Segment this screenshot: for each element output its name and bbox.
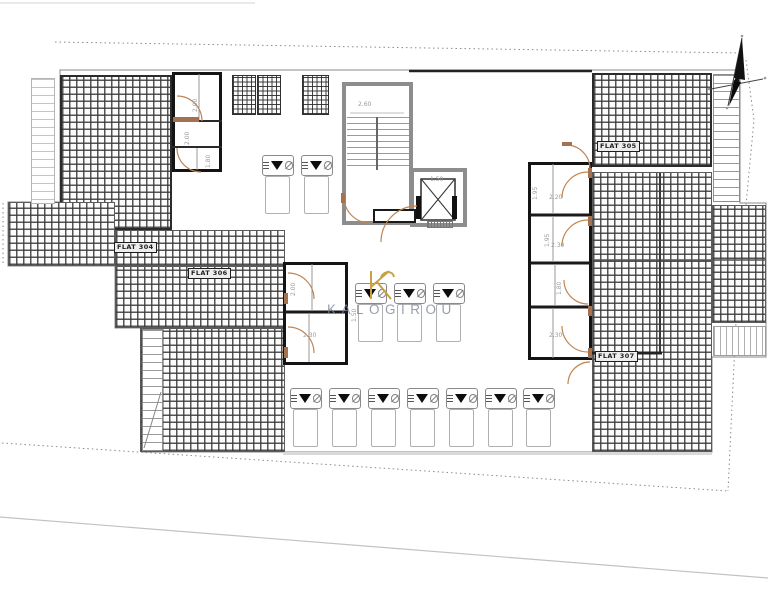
heater-panel-icon	[433, 283, 465, 304]
terrace-hatch-top-right	[592, 73, 712, 167]
heater-panel-icon	[485, 388, 517, 409]
dim-right-room-1-h: 1.95	[533, 187, 539, 200]
flat-label-center-left: FLAT 306	[188, 268, 231, 279]
terrace-hatch-left-wing	[8, 202, 115, 266]
dim-top-room-lower: 2.00	[185, 132, 191, 145]
dim-right-room-1-w: 2.20	[549, 195, 562, 201]
external-stair-center-left	[142, 329, 163, 451]
external-stair-right	[713, 74, 740, 202]
heater-panel-icon	[290, 388, 322, 409]
heater-panel-icon	[301, 155, 333, 176]
elevator-door-sill	[427, 221, 453, 228]
solar-water-heater-unit	[290, 388, 324, 450]
flat-label-top-left: FLAT 304	[114, 242, 157, 253]
dim-left-room-lower: 2.30	[303, 333, 316, 339]
heater-panel-icon	[446, 388, 478, 409]
external-stair-left	[31, 78, 55, 204]
solar-water-heater-unit	[301, 155, 335, 217]
dim-top-room-upper: 2.00	[193, 99, 199, 112]
solar-water-heater-unit	[485, 388, 519, 450]
heater-panel-icon	[407, 388, 439, 409]
solar-water-heater-unit	[329, 388, 363, 450]
dim-right-room-3-h: 1.80	[557, 282, 563, 295]
dim-lift: 1.50	[430, 177, 443, 183]
flat-label-top-right: FLAT 305	[597, 141, 640, 152]
solar-water-heater-unit	[262, 155, 296, 217]
solar-water-heater-unit	[523, 388, 557, 450]
solar-water-heater-unit	[407, 388, 441, 450]
flat-label-bottom-right: FLAT 307	[595, 351, 638, 362]
solar-panel-2	[257, 75, 281, 115]
site-contour-lines	[0, 517, 768, 578]
terrace-hatch-right-edge	[712, 205, 766, 323]
staircase-treads	[347, 117, 409, 170]
solar-panel-3	[302, 75, 329, 115]
external-stair-right-lower	[713, 326, 766, 356]
dim-top-room-lower-b: 1.80	[206, 155, 212, 168]
floor-plan-canvas: FLAT 304 FLAT 306 FLAT 305 FLAT 307 2.60…	[0, 0, 768, 595]
dim-right-room-2-h: 1.95	[545, 234, 551, 247]
dim-right-room-4-w: 2.30	[549, 333, 562, 339]
heater-panel-icon	[329, 388, 361, 409]
solar-water-heater-unit	[446, 388, 480, 450]
kalogirou-logo-icon	[366, 268, 396, 302]
terrace-hatch-right	[592, 172, 712, 452]
heater-panel-icon	[262, 155, 294, 176]
dim-stair-width: 2.60	[358, 102, 371, 108]
dim-right-room-2-w: 2.30	[551, 243, 564, 249]
heater-panel-icon	[368, 388, 400, 409]
heater-panel-icon	[523, 388, 555, 409]
solar-panel-1	[232, 75, 256, 115]
dim-left-room-upper: 2.00	[291, 283, 297, 296]
heater-panel-icon	[394, 283, 426, 304]
kalogirou-watermark-text: KALOGIROU	[327, 302, 457, 317]
solar-water-heater-unit	[368, 388, 402, 450]
roof-room-top	[172, 72, 222, 172]
